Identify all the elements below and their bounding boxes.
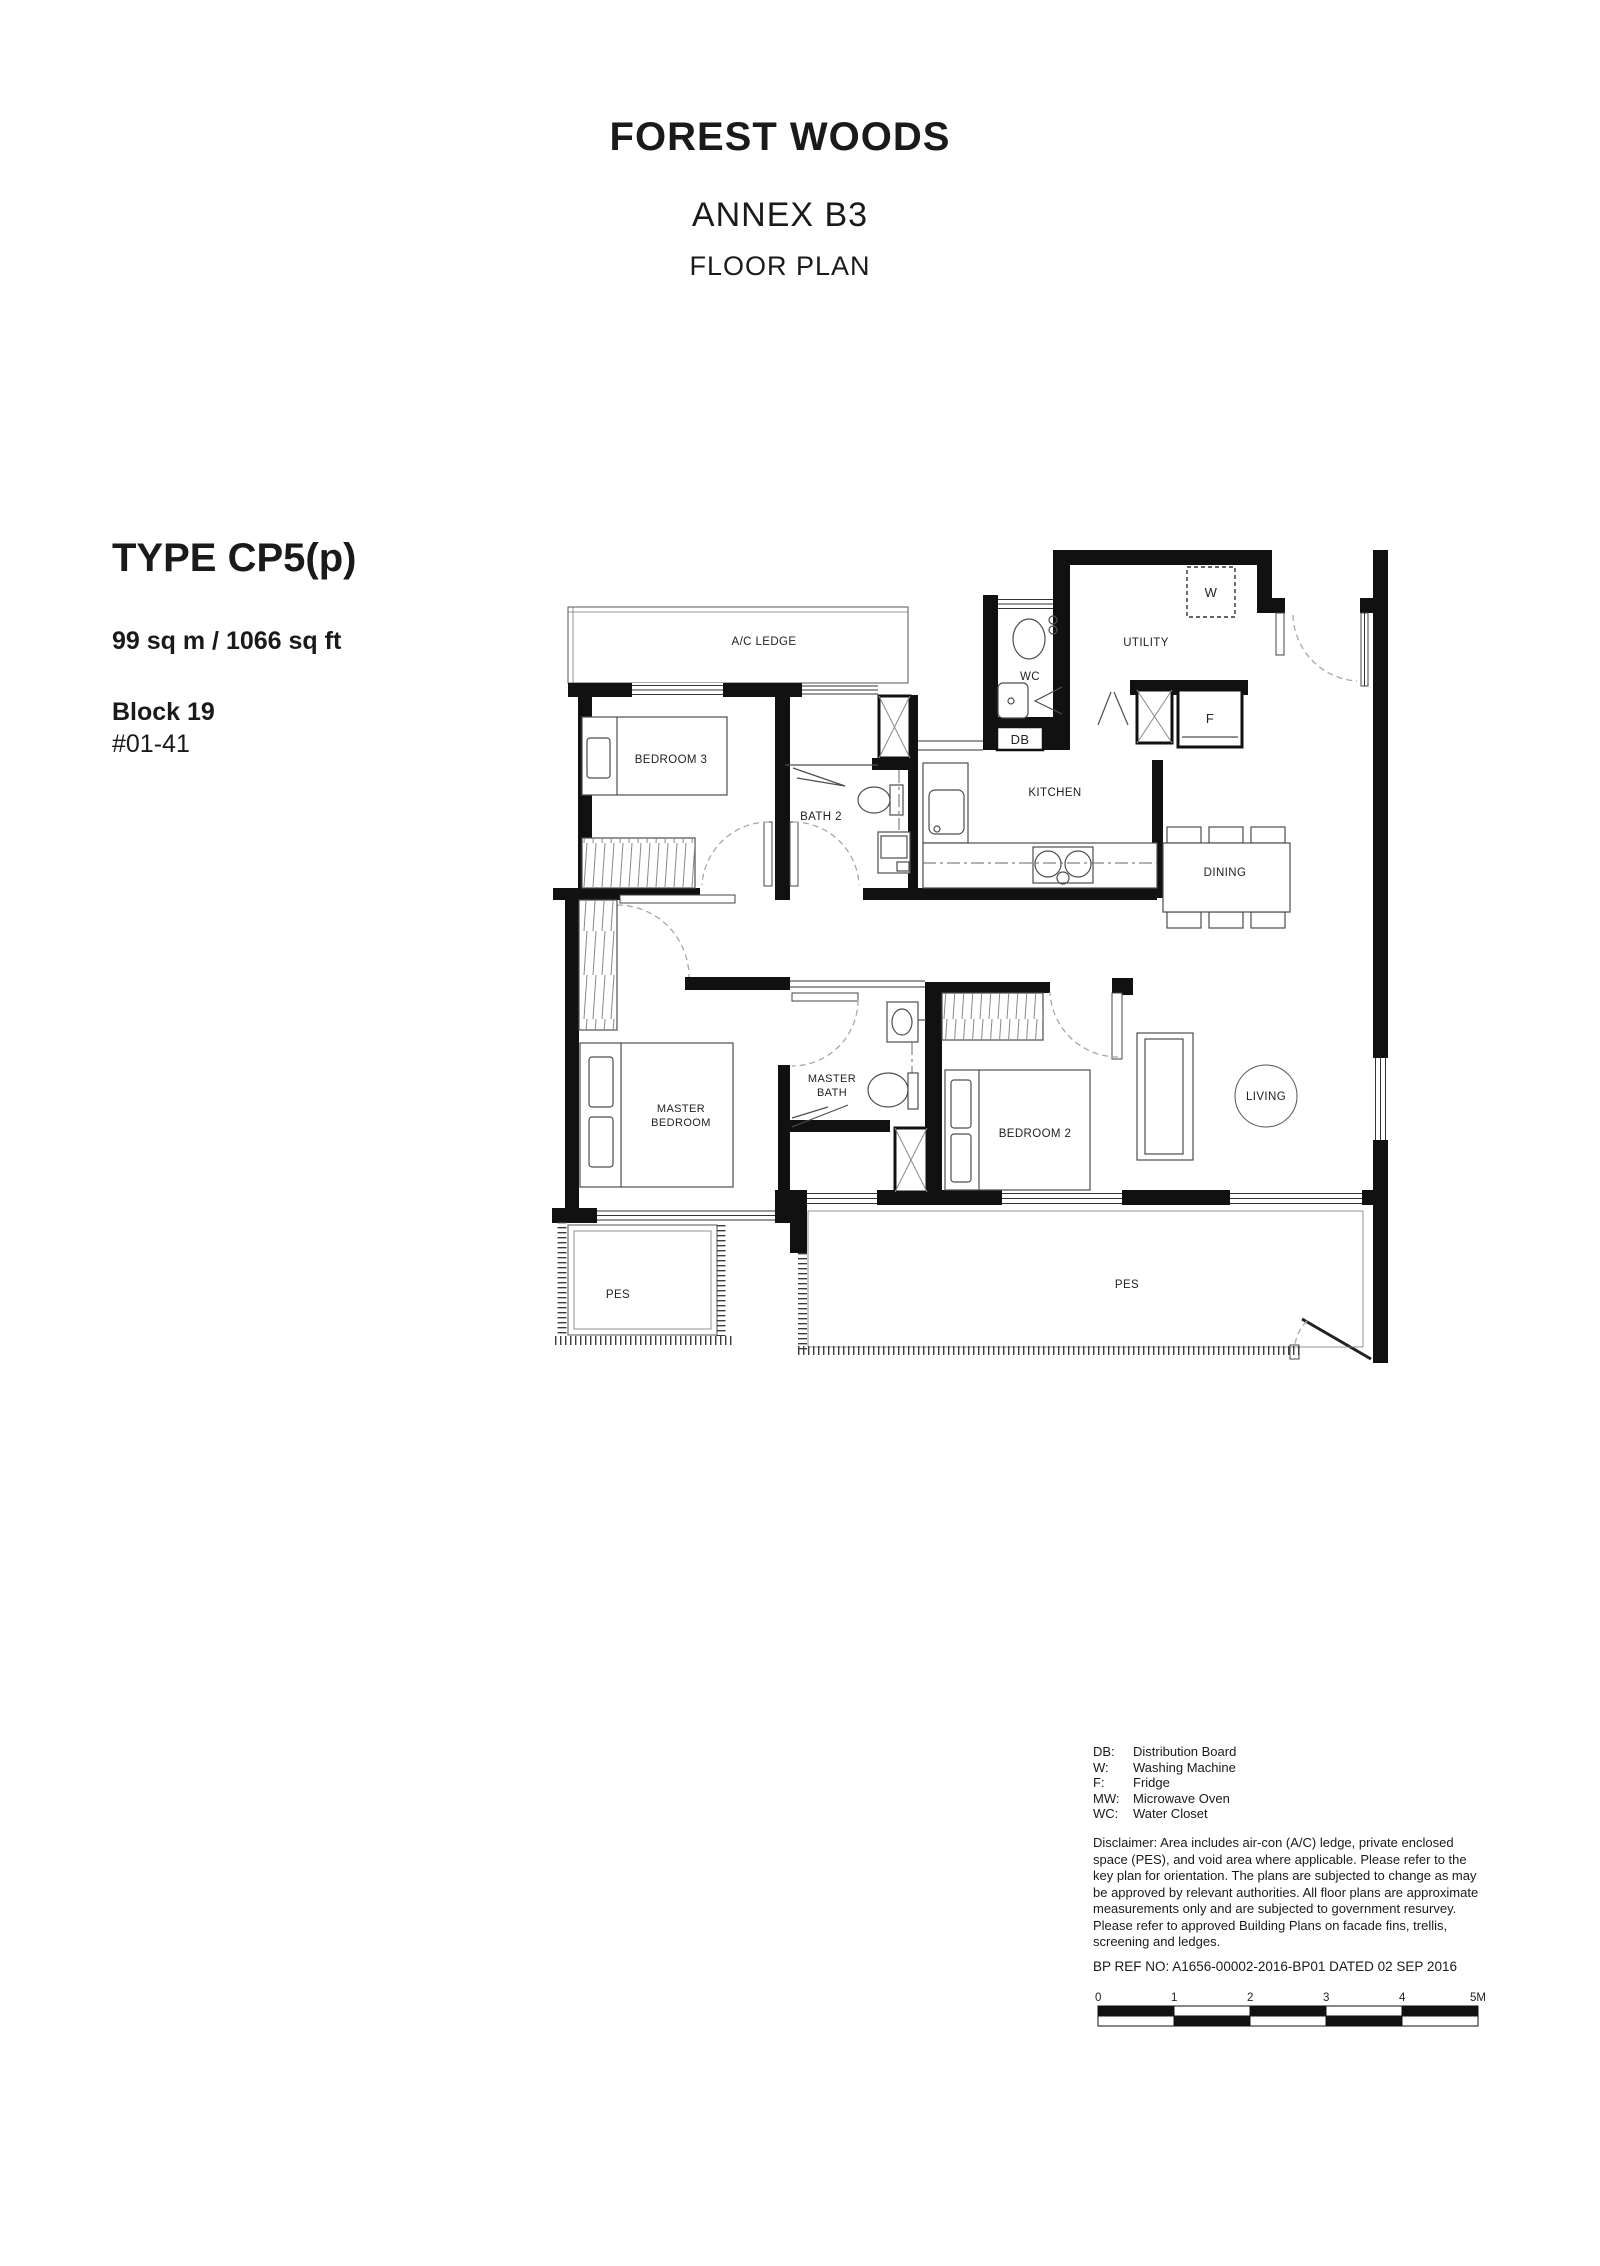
ac-unit-utility — [1137, 690, 1172, 743]
legend-value: Microwave Oven — [1133, 1791, 1230, 1807]
shower-bath2 — [785, 765, 878, 786]
legend-value: Distribution Board — [1133, 1744, 1236, 1760]
disclaimer-line: Disclaimer: Area includes air-con (A/C) … — [1093, 1835, 1503, 1852]
room-label-bath2: BATH 2 — [800, 811, 842, 823]
unit-block: Block 19 — [112, 698, 492, 727]
door-bath2 — [790, 822, 859, 886]
legend-value: Washing Machine — [1133, 1760, 1236, 1776]
floor-plan-drawing: A/C LEDGE BEDROOM 3 BATH 2 WC UTILITY DB… — [545, 535, 1405, 1370]
ironing-rack — [1098, 692, 1128, 725]
wardrobe-master-bedroom — [579, 900, 617, 1030]
scale-label-5m: 5M — [1470, 1992, 1486, 2004]
bed-master-bedroom — [580, 1043, 733, 1187]
ac-unit-master-bath — [895, 1128, 927, 1192]
legend-key: DB: — [1093, 1744, 1133, 1760]
toilet-master-bath — [868, 1073, 918, 1109]
unit-number: #01-41 — [112, 730, 492, 759]
pes-fences — [555, 1211, 1363, 1351]
disclaimer-line: be approved by relevant authorities. All… — [1093, 1885, 1503, 1902]
walls — [552, 550, 1388, 1363]
disclaimer-line: key plan for orientation. The plans are … — [1093, 1868, 1503, 1885]
legend: DB: Distribution Board W: Washing Machin… — [1093, 1744, 1236, 1822]
legend-row-db: DB: Distribution Board — [1093, 1744, 1236, 1760]
door-bedroom3 — [702, 822, 772, 886]
room-label-db: DB — [1011, 732, 1030, 747]
legend-row-f: F: Fridge — [1093, 1775, 1236, 1791]
room-label-bedroom3: BEDROOM 3 — [635, 754, 708, 766]
scale-label-1: 1 — [1171, 1992, 1177, 2004]
legend-row-w: W: Washing Machine — [1093, 1760, 1236, 1776]
door-master-bath — [792, 993, 858, 1066]
legend-value: Fridge — [1133, 1775, 1170, 1791]
floor-plan-page: { "header": { "title": "FOREST WOODS", "… — [0, 0, 1600, 2266]
sink-wc — [998, 683, 1028, 718]
legend-row-wc: WC: Water Closet — [1093, 1806, 1236, 1822]
door-master-bedroom — [617, 895, 735, 977]
annex-subtitle: ANNEX B3 — [400, 196, 1160, 234]
room-label-bedroom2: BEDROOM 2 — [999, 1128, 1072, 1140]
legend-key: F: — [1093, 1775, 1133, 1791]
project-title: FOREST WOODS — [400, 114, 1160, 160]
disclaimer: Disclaimer: Area includes air-con (A/C) … — [1093, 1835, 1503, 1951]
vanity-bath2 — [878, 832, 910, 873]
scale-bar-labels: 0 1 2 3 4 5M — [1095, 1992, 1486, 2004]
scale-label-0: 0 — [1095, 1992, 1101, 2004]
room-label-master-bath-1: MASTER — [808, 1073, 856, 1085]
room-label-wc: WC — [1020, 671, 1040, 683]
room-label-ac-ledge: A/C LEDGE — [732, 636, 797, 648]
floor-plan-caption: FLOOR PLAN — [400, 250, 1160, 282]
sofa — [1137, 1033, 1193, 1160]
scale-label-4: 4 — [1399, 1992, 1406, 2004]
unit-type: TYPE CP5(p) — [112, 536, 492, 581]
scale-label-3: 3 — [1323, 1992, 1329, 2004]
toilet-bath2 — [858, 785, 903, 815]
disclaimer-line: space (PES), and void area where applica… — [1093, 1852, 1503, 1869]
legend-key: WC: — [1093, 1806, 1133, 1822]
legend-value: Water Closet — [1133, 1806, 1208, 1822]
scale-bar-segments — [1098, 2006, 1478, 2026]
gate-pes — [1290, 1319, 1371, 1359]
unit-area: 99 sq m / 1066 sq ft — [112, 627, 492, 656]
room-label-master-bedroom-2: BEDROOM — [651, 1117, 711, 1129]
room-label-dining: DINING — [1204, 867, 1247, 879]
room-label-utility: UTILITY — [1123, 637, 1169, 649]
door-main-entrance — [1276, 613, 1357, 681]
scale-label-2: 2 — [1247, 1992, 1253, 2004]
ac-unit-bath2 — [879, 696, 910, 758]
unit-info-block: TYPE CP5(p) 99 sq m / 1066 sq ft Block 1… — [112, 536, 492, 759]
toilet-wc — [1013, 616, 1057, 659]
title-block: FOREST WOODS ANNEX B3 FLOOR PLAN — [400, 114, 1160, 282]
room-label-master-bath-2: BATH — [817, 1087, 847, 1099]
legend-row-mw: MW: Microwave Oven — [1093, 1791, 1236, 1807]
disclaimer-line: screening and ledges. — [1093, 1934, 1503, 1951]
scale-bar: 0 1 2 3 4 5M — [1080, 1988, 1500, 2036]
room-label-living: LIVING — [1246, 1091, 1286, 1103]
door-bedroom2 — [1050, 992, 1122, 1059]
room-label-washer: W — [1205, 585, 1218, 600]
disclaimer-line: Please refer to approved Building Plans … — [1093, 1918, 1503, 1935]
legend-key: MW: — [1093, 1791, 1133, 1807]
wardrobe-bedroom2 — [942, 993, 1043, 1040]
bp-ref: BP REF NO: A1656-00002-2016-BP01 DATED 0… — [1093, 1959, 1457, 1974]
legend-key: W: — [1093, 1760, 1133, 1776]
disclaimer-line: measurements only and are subjected to g… — [1093, 1901, 1503, 1918]
room-label-kitchen: KITCHEN — [1028, 787, 1081, 799]
room-label-pes-left: PES — [606, 1289, 630, 1301]
room-label-pes-right: PES — [1115, 1279, 1139, 1291]
room-label-master-bedroom-1: MASTER — [657, 1103, 705, 1115]
wardrobe-bedroom3 — [582, 838, 695, 888]
kitchen-counter — [923, 763, 1157, 888]
room-label-fridge: F — [1206, 711, 1214, 726]
